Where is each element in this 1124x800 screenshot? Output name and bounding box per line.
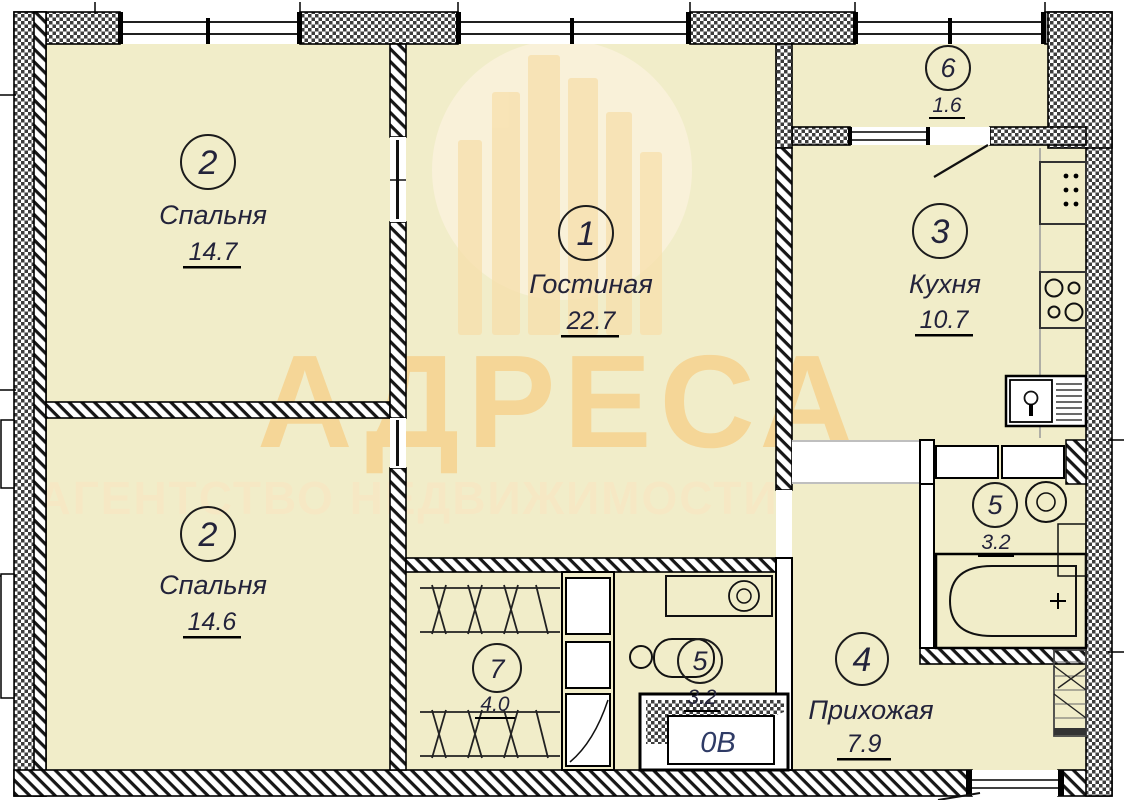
room-number: 5 [692,646,708,676]
room-name: Прихожая [808,695,933,725]
room-name: Гостиная [529,269,653,299]
floor-plan: АДРЕСА АГЕНТСТВО НЕДВИЖИМОСТИ [0,0,1124,800]
room-area: 14.6 [188,608,237,636]
room-name: Спальня [159,200,267,230]
room-number: 5 [987,490,1003,520]
room-area: 4.0 [480,693,510,716]
room-area: 3.2 [687,686,717,709]
shaft-panels [562,572,614,770]
bathroom-door-unit [920,440,1086,484]
window-living [456,12,691,44]
watermark-subtitle: АГЕНТСТВО НЕДВИЖИМОСТИ [37,472,778,524]
room-area: 22.7 [566,307,617,335]
room-number: 7 [489,654,505,684]
room-name: Спальня [159,570,267,600]
room-area: 14.7 [189,238,239,266]
room-number: 2 [198,144,218,182]
room-number: 3 [931,213,950,251]
room-area: 1.6 [932,94,962,117]
room-area: 3.2 [981,531,1011,554]
floor-plan-drawing: АДРЕСА АГЕНТСТВО НЕДВИЖИМОСТИ [0,0,1124,800]
room-name: Кухня [909,269,981,299]
room-number: 2 [198,516,218,554]
room-area: 7.9 [847,730,882,758]
window-bedroom [118,12,302,44]
room-number: 1 [577,215,596,253]
room-number: 4 [853,641,872,679]
room-area: 10.7 [920,306,970,334]
window-balcony [853,12,1046,44]
room-number: 6 [940,53,956,83]
vent-shaft-label: 0В [700,727,735,759]
kitchen-sink [1006,376,1086,426]
